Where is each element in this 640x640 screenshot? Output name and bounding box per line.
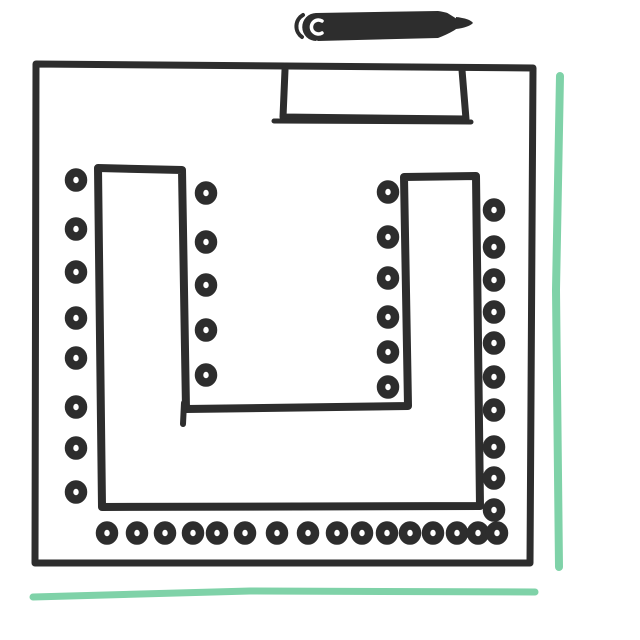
seat-dot [381, 310, 395, 325]
seat-dot [69, 400, 83, 415]
u-table-outline [98, 168, 480, 507]
front-board-rectangle [283, 70, 466, 119]
seat-dot [381, 380, 395, 395]
seat-dot [301, 526, 315, 541]
seat-dot [381, 185, 395, 200]
seat-dot [487, 273, 501, 288]
seat-dot [487, 440, 501, 455]
seat-dot [199, 278, 213, 293]
seat-dot [490, 526, 504, 541]
seat-dot [199, 368, 213, 383]
marker-pen-doodle-icon [296, 7, 473, 43]
seat-dot [69, 173, 83, 188]
seat-dot [330, 526, 344, 541]
seat-dot [158, 526, 172, 541]
seat-dot [100, 526, 114, 541]
seat-group-right-wall [487, 203, 501, 518]
seat-dot [130, 526, 144, 541]
marker-doodle-stroke [302, 13, 316, 41]
seat-dot [69, 222, 83, 237]
front-board-underline [274, 121, 471, 122]
seat-dot [69, 265, 83, 280]
seat-dot [487, 471, 501, 486]
accent-line-bottom [33, 591, 535, 597]
seat-dot [487, 403, 501, 418]
seat-dot [450, 526, 464, 541]
u-table-inner-overshoot [183, 403, 184, 424]
room-outline [35, 64, 533, 563]
seat-dot [487, 305, 501, 320]
seat-dot [238, 526, 252, 541]
seat-dot [471, 526, 485, 541]
marker-doodle-stroke [296, 15, 303, 37]
floorplan-sketch-canvas [0, 0, 640, 640]
seat-dot [186, 526, 200, 541]
seat-dot [403, 526, 417, 541]
seat-dot [199, 235, 213, 250]
seat-dot [487, 336, 501, 351]
marker-doodle-stroke [456, 17, 473, 29]
seat-dot [487, 240, 501, 255]
seat-dot [487, 370, 501, 385]
seat-group-inner-right [381, 185, 395, 395]
seat-dot [270, 526, 284, 541]
seat-dot [426, 526, 440, 541]
seat-group-left-wall [69, 173, 83, 500]
floorplan-sketch-page [0, 0, 640, 640]
seat-dot [487, 203, 501, 218]
seat-dot [380, 526, 394, 541]
accent-line-right [556, 76, 560, 567]
seat-dot [381, 230, 395, 245]
seat-group-bottom-row [100, 526, 504, 541]
seat-dot [69, 351, 83, 366]
marker-doodle-stroke [312, 11, 466, 41]
seat-dot [69, 441, 83, 456]
seat-dot [210, 526, 224, 541]
seat-dot [381, 345, 395, 360]
seat-dot [69, 485, 83, 500]
seat-dot [487, 503, 501, 518]
seat-dot [69, 311, 83, 326]
seat-dot [199, 323, 213, 338]
seat-group-inner-left [199, 186, 213, 383]
seat-dot [199, 186, 213, 201]
seat-dot [355, 526, 369, 541]
seat-dot [381, 271, 395, 286]
